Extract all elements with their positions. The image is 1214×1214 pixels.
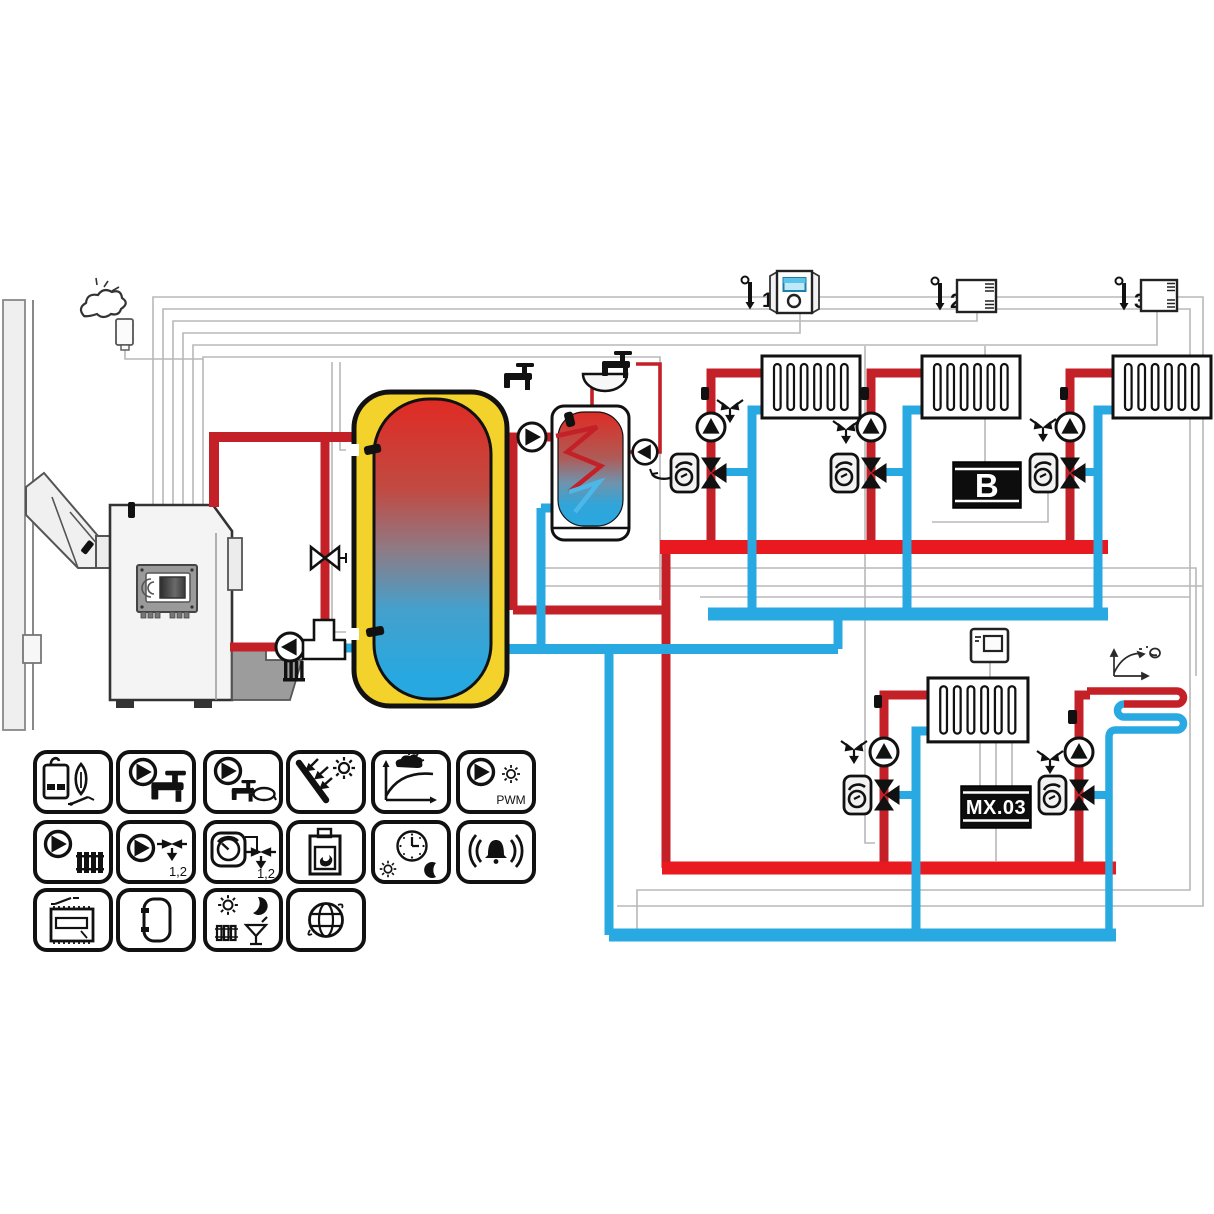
legend-tile-mix-pump: 1,2: [118, 822, 194, 882]
boiler-return-pump: [276, 633, 304, 661]
legend: PWM 1,2 1,2: [35, 752, 534, 950]
dhw-tank: [552, 406, 629, 540]
circuit-1-pump: [697, 413, 725, 441]
legend-tile-alarm: [458, 822, 534, 882]
room-unit-1: [770, 271, 819, 313]
air-vent-3: [1030, 419, 1056, 440]
room-unit-2: [957, 280, 996, 312]
supply-sensor-1: [701, 387, 709, 400]
dhw-circulation-pump: [633, 440, 658, 465]
room-unit-3: [1141, 280, 1177, 311]
controller-display: [160, 577, 185, 598]
schematic-page: 1 2 3 B MX.03: [0, 0, 1214, 1214]
air-vent-5: [1037, 751, 1063, 772]
legend-tile-stove: [288, 822, 364, 882]
module-mx03: MX.03: [961, 786, 1031, 828]
circuit-5-mixing-valve: [1069, 780, 1095, 811]
room-unit-1-knob: [788, 295, 800, 307]
legend-tile-internet: [288, 890, 364, 950]
radiator-3: [1113, 356, 1211, 418]
circuit-3-pump: [1056, 413, 1084, 441]
lower-zone-thermostat: [971, 629, 1008, 662]
boiler-controller: [137, 565, 197, 618]
radiator-4: [928, 678, 1028, 742]
air-vent-2: [833, 421, 859, 442]
heating-curve-sketch: [1111, 647, 1160, 679]
legend-tile-solar-collector: [288, 752, 364, 812]
heating-schematic: 1 2 3 B MX.03: [0, 0, 1214, 1214]
module-mx03-label: MX.03: [966, 797, 1026, 819]
legend-tile-heating-pump: [35, 822, 111, 882]
legend-tile-timer: [373, 822, 449, 882]
supply-sensor-2: [861, 387, 869, 400]
flue-duct: [26, 473, 112, 568]
circuit-4-mixing-valve: [874, 780, 900, 811]
legend-tile-buffer: [118, 890, 194, 950]
t-fitting: [303, 620, 345, 659]
circuit-2-actuator: [831, 454, 858, 492]
circuit-4-pump: [870, 738, 898, 766]
legend-tile-boiler-burner-contact: [35, 752, 111, 812]
chimney-access-box: [23, 635, 41, 663]
boiler-top-sensor: [128, 502, 135, 518]
legend-tile-relay: [35, 890, 111, 950]
circuit-5-pump: [1065, 738, 1093, 766]
legend-tile-pwm-pump: PWM: [458, 752, 534, 812]
cloud-icon: [81, 290, 126, 317]
air-vent-4: [841, 741, 867, 762]
legend-tile-dhw-circulation-pump: [205, 752, 281, 812]
supply-sensor-3: [1060, 387, 1068, 400]
legend-mix-pump-label: 1,2: [169, 864, 187, 879]
outdoor-sensor: [81, 278, 133, 350]
circuit-2-pump: [857, 413, 885, 441]
radiator-1: [762, 356, 860, 418]
legend-tile-party-mode: [205, 890, 281, 950]
legend-tile-mix-dial: 1,2: [205, 822, 281, 882]
dhw-charge-pump: [518, 423, 546, 451]
module-b: B: [953, 462, 1021, 508]
circuit-1-actuator: [671, 454, 698, 492]
supply-sensor-4: [874, 695, 882, 708]
legend-tile-weather-curve: [373, 752, 449, 812]
return-group: [276, 547, 346, 682]
dhw-tap-icon: [504, 363, 534, 390]
legend-tile-dhw-pump: [118, 752, 194, 812]
supply-sensor-5: [1068, 710, 1077, 724]
legend-mix-dial-label: 1,2: [257, 866, 275, 881]
circuit-5-actuator: [1039, 776, 1066, 814]
circuit-3-mixing-valve: [1060, 458, 1086, 489]
buffer-tank: [346, 392, 507, 706]
radiator-2: [922, 356, 1020, 418]
circuit-3-actuator: [1030, 454, 1057, 492]
module-b-label: B: [975, 467, 999, 504]
pellet-boiler: [110, 502, 302, 708]
outdoor-sensor-box: [116, 319, 133, 345]
circuit-1-mixing-valve: [701, 458, 727, 489]
floor-heating-coil: [1087, 691, 1184, 935]
legend-pwm-label: PWM: [496, 793, 525, 807]
circuit-4-actuator: [844, 776, 871, 814]
